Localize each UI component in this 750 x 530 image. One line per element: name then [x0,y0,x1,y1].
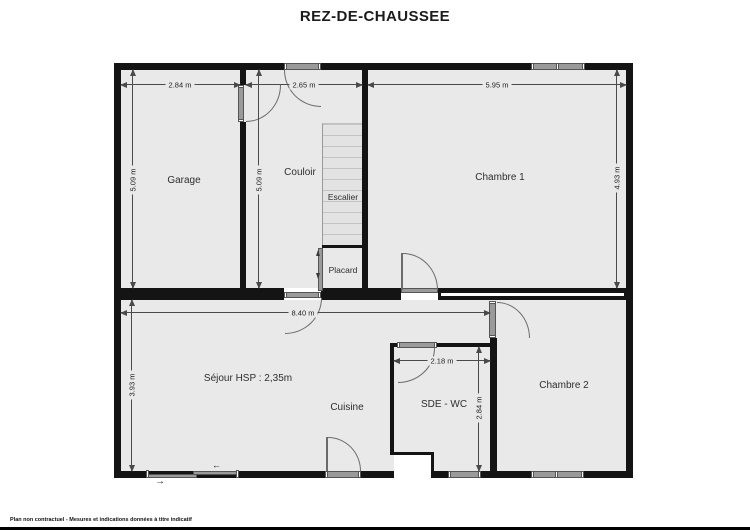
bay-window-cap [236,470,239,478]
dimension-chambre1-height: 4.93 m [613,164,622,193]
entrance-arrow: → [155,477,165,487]
window-sde-wc [448,471,481,478]
placard-slide-arrow-up [316,250,320,256]
room-label-sejour: Séjour HSP : 2,35m [204,373,292,385]
dimension-couloir-width: 2.65 m [290,81,319,90]
room-label-placard: Placard [329,264,358,276]
chambre2-door-leaf [489,301,496,338]
wall-chambre2-left [490,338,497,471]
dimension-sde-width: 2.18 m [428,357,457,366]
staircase [322,123,362,245]
room-label-couloir: Couloir [284,167,316,179]
disclaimer-text: Plan non contractuel - Mesures et indica… [10,517,192,523]
window-chambre2 [531,471,584,478]
dimension-couloir-height: 5.09 m [255,166,264,195]
dimension-chambre1-width: 5.95 m [483,81,512,90]
window-mullion [555,471,558,478]
window-chambre1 [531,63,585,70]
bay-window-panel-right [193,471,238,475]
floor-plan-page: REZ-DE-CHAUSSEE ← → [0,0,750,530]
wall-garage-couloir-lower [240,122,246,288]
dimension-sde-height: 2.84 m [475,394,484,423]
dimension-garage-height: 5.09 m [129,166,138,195]
room-label-garage: Garage [167,175,200,187]
duct-notch [394,455,431,478]
entrance-door-leaf [284,63,321,70]
wall-middle-center [321,288,401,300]
wall-left [114,63,121,478]
window-mullion [556,63,559,70]
room-label-escalier: Escalier [328,191,358,203]
floor-area [121,70,626,471]
dimension-sejour-height: 3.93 m [128,371,137,400]
room-label-chambre1: Chambre 1 [475,172,524,184]
wall-placard-top [322,245,362,248]
wall-couloir-chambre1 [362,70,368,288]
room-label-chambre2: Chambre 2 [539,380,588,392]
duct-notch-right [431,455,434,478]
dimension-garage-width: 2.84 m [166,81,195,90]
dimension-sejour-width: 8.40 m [289,309,318,318]
double-wall-gap [441,293,624,296]
slide-direction-arrow: ← [212,461,221,470]
bay-window-cap [146,470,149,478]
wall-sde-top-east [436,343,494,347]
room-label-sde-wc: SDE - WC [421,399,467,411]
wall-middle-west [121,288,284,300]
garage-door-leaf [238,85,244,122]
page-title: REZ-DE-CHAUSSEE [0,8,750,25]
placard-slide-arrow-down [316,273,320,279]
cuisine-door-threshold [325,471,361,478]
wall-right [626,63,633,478]
bottom-rule [0,527,750,530]
room-label-cuisine: Cuisine [330,402,363,414]
